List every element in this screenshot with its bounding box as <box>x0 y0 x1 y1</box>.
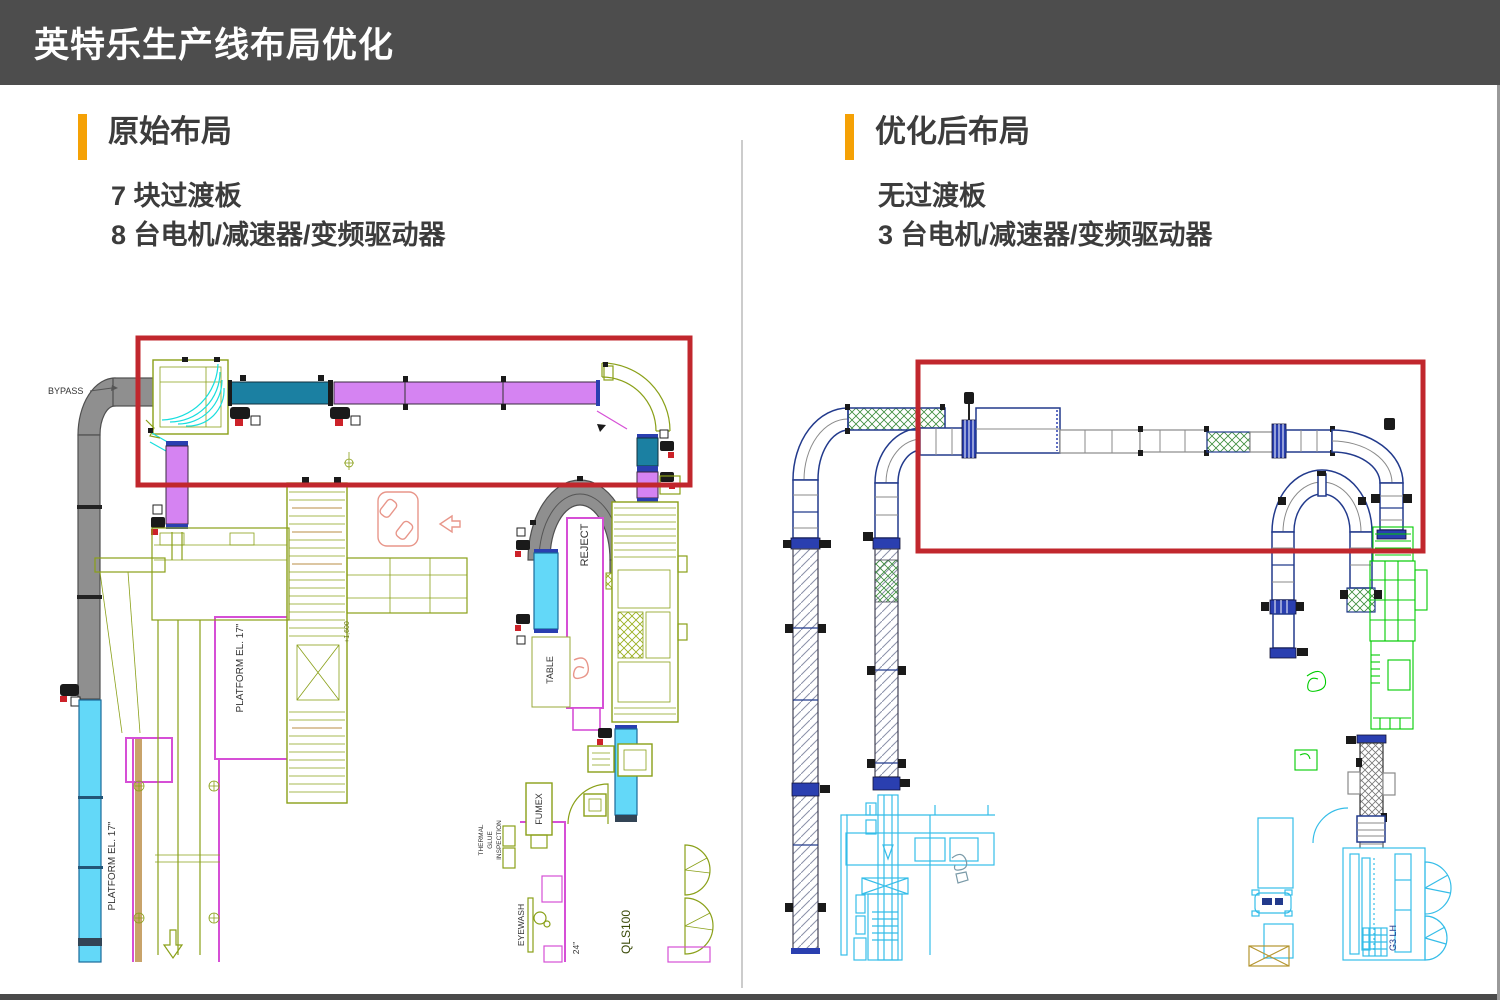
panel-divider <box>741 140 743 988</box>
optimized-bullet-2: 3 台电机/减速器/变频驱动器 <box>878 216 1213 255</box>
slide-title: 英特乐生产线布局优化 <box>0 17 394 68</box>
lower-cyan-segment <box>568 725 652 824</box>
fumex-label: FUMEX <box>534 793 544 825</box>
salmon-cart <box>378 492 460 546</box>
eyewash-label: EYEWASH <box>516 904 526 946</box>
slide-header: 英特乐生产线布局优化 <box>0 0 1500 85</box>
machine-label: G3 LH <box>1388 925 1398 951</box>
vertical-transfer-segments <box>637 430 675 502</box>
bypass-label: BYPASS <box>48 386 83 396</box>
accent-bar <box>78 114 87 160</box>
end-curve <box>597 362 670 432</box>
width-label: 24" <box>571 942 581 954</box>
elevation-label: +1,600 <box>344 621 351 643</box>
platform-lower-label: PLATFORM EL. 17" <box>107 821 118 910</box>
u-turn <box>1261 470 1382 658</box>
original-panel-heading: 原始布局 7 块过渡板 8 台电机/减速器/变频驱动器 <box>78 112 446 255</box>
cyan-machine-left <box>841 795 995 960</box>
optimized-bullet-1: 无过渡板 <box>878 177 1213 216</box>
magenta-drop-conveyor <box>151 441 188 560</box>
machine-label: QLS100 <box>619 910 633 954</box>
optimized-highlight-box <box>918 362 1423 551</box>
table-label: TABLE <box>545 656 555 684</box>
original-heading: 原始布局 <box>108 112 232 152</box>
original-bullet-2: 8 台电机/减速器/变频驱动器 <box>111 216 446 255</box>
accent-bar <box>845 114 854 160</box>
thermal-label-3: INSPECTION <box>496 820 503 860</box>
reject-label: REJECT <box>579 523 591 566</box>
bottom-right-machine: G3 LH <box>1249 735 1451 966</box>
original-bullet-1: 7 块过渡板 <box>111 177 446 216</box>
right-olive-machine <box>612 502 687 722</box>
thermal-label-1: THERMAL <box>478 824 485 855</box>
platform-upper-label: PLATFORM EL. 17" <box>235 623 246 712</box>
top-conveyor-run <box>228 375 600 426</box>
fan-shapes <box>685 845 713 954</box>
optimized-layout-drawing: G3 LH <box>750 330 1500 990</box>
thermal-label-2: GLUE <box>487 830 494 848</box>
optimized-panel-heading: 优化后布局 无过渡板 3 台电机/减速器/变频驱动器 <box>845 112 1213 255</box>
optimized-heading: 优化后布局 <box>875 112 1030 152</box>
bottom-border <box>0 994 1500 1000</box>
original-layout-drawing: REJECT TABLE <box>30 330 735 990</box>
